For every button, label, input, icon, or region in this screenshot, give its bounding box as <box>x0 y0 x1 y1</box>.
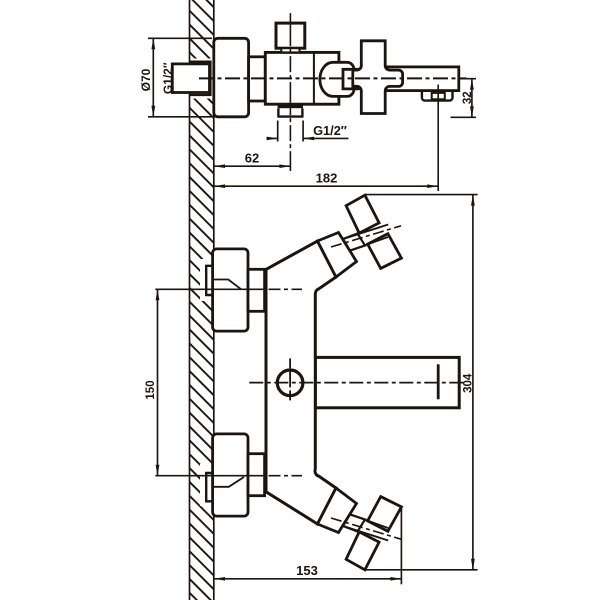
svg-text:182: 182 <box>316 171 338 186</box>
svg-text:62: 62 <box>245 151 259 166</box>
svg-text:153: 153 <box>296 563 318 578</box>
svg-text:32: 32 <box>462 91 474 104</box>
svg-text:Ø70: Ø70 <box>139 68 153 91</box>
svg-text:304: 304 <box>463 373 475 393</box>
svg-text:G1/2″: G1/2″ <box>161 62 175 94</box>
svg-text:G1/2″: G1/2″ <box>313 123 347 138</box>
svg-text:150: 150 <box>145 380 157 399</box>
